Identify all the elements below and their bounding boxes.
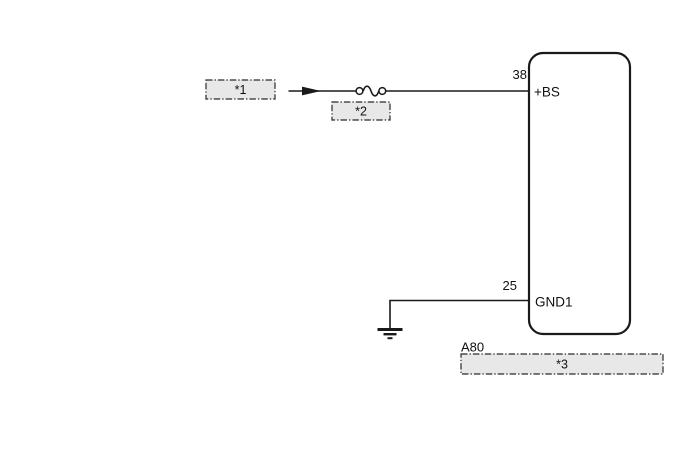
pin-38-name: +BS [534, 85, 560, 100]
fuse-icon [356, 86, 386, 96]
connector-code-label: A80 [461, 340, 484, 355]
callout-1-label: *1 [235, 83, 247, 97]
ground-wire [390, 301, 529, 329]
callout-1: *1 [206, 80, 275, 99]
pin-25-name: GND1 [535, 295, 573, 310]
callout-2: *2 [332, 102, 390, 120]
fuse-element-wave [363, 86, 379, 96]
callout-3-label: *3 [556, 358, 568, 372]
wiring-diagram: 38 +BS 25 GND1 A80 *1 *2 *3 [0, 0, 688, 463]
ground-icon [378, 330, 403, 339]
wiring-diagram-canvas: 38 +BS 25 GND1 A80 *1 *2 *3 [0, 0, 688, 463]
pin-38-number: 38 [513, 67, 527, 82]
fuse-terminal-right [379, 88, 386, 95]
fuse-terminal-left [356, 88, 363, 95]
callout-2-label: *2 [355, 105, 367, 119]
callout-3: *3 [461, 354, 663, 374]
pin-25-number: 25 [503, 278, 517, 293]
power-flow-arrow-icon [302, 87, 321, 96]
